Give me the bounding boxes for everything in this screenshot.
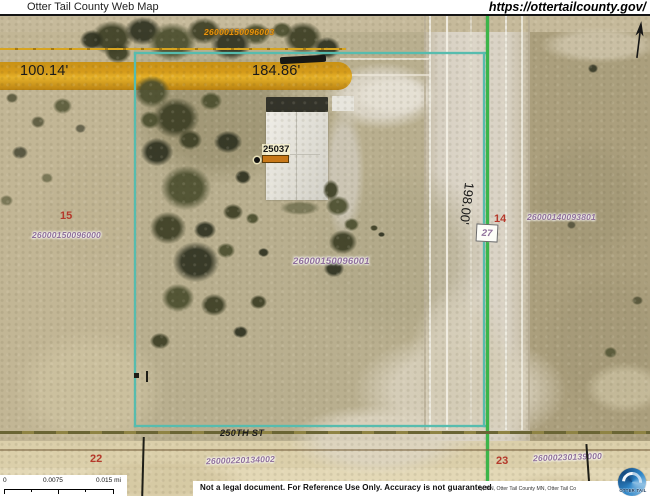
logo-caption: OTTER TAIL	[616, 488, 650, 493]
culvert-symbol	[134, 373, 139, 378]
tree-canopy	[588, 64, 598, 73]
lot-number: 27	[481, 227, 492, 239]
house-annex-roof	[332, 96, 354, 111]
lot-line-yellow	[0, 48, 346, 50]
scale-middle-label: 0.0075	[43, 477, 63, 484]
tree-canopy	[194, 221, 216, 239]
section-number-14: 14	[494, 213, 506, 225]
dimension-north: 184.86'	[252, 63, 301, 79]
street-label: 250TH ST	[220, 428, 264, 438]
tree-canopy	[223, 204, 243, 220]
tree-canopy	[604, 347, 617, 358]
road-marking	[521, 16, 523, 430]
tree-canopy	[41, 173, 53, 183]
tree-canopy	[200, 92, 222, 110]
parcel-id-label-center[interactable]: 26000150096001	[293, 256, 370, 267]
tree-canopy	[250, 295, 267, 309]
tree-canopy	[173, 242, 219, 282]
scale-end-label: 0.015 mi	[96, 477, 121, 484]
site-url[interactable]: https://ottertailcounty.gov/	[489, 0, 646, 14]
road-marking	[424, 16, 426, 430]
lot-number-box: 27	[476, 223, 499, 242]
tree-canopy	[214, 131, 242, 153]
tree-canopy	[150, 333, 170, 349]
attribution-text: ty, MN, Otter Tail County MN, Otter Tail…	[479, 486, 576, 492]
address-highlight-bar	[262, 155, 289, 163]
tree-canopy	[344, 218, 359, 231]
tree-canopy	[105, 43, 131, 63]
tree-canopy	[75, 124, 86, 133]
section-number-23: 23	[496, 455, 508, 467]
street-south-edge-line	[0, 449, 650, 451]
scale-start-label: 0	[3, 477, 7, 484]
scale-bar-line	[4, 489, 114, 490]
roof-ridge-line	[296, 112, 297, 200]
parcel-boundary-west	[134, 52, 136, 427]
north-arrow-icon	[631, 21, 647, 59]
tree-canopy	[12, 146, 28, 159]
tree-canopy	[323, 180, 339, 200]
road-marking	[446, 16, 448, 430]
header-bar: Otter Tail County Web Map https://ottert…	[0, 0, 650, 16]
section-line-green	[486, 16, 489, 482]
section-number-15: 15	[60, 210, 72, 222]
tree-canopy	[370, 225, 378, 231]
tree-canopy	[140, 111, 160, 129]
tree-canopy	[53, 98, 72, 114]
house-number-label: 25037	[262, 144, 290, 155]
tree-canopy	[0, 195, 13, 206]
street-edge-line	[0, 431, 650, 434]
tree-canopy	[235, 170, 251, 184]
tree-canopy	[632, 296, 643, 305]
tree-canopy	[6, 93, 18, 103]
scale-tick	[113, 489, 114, 494]
tree-canopy	[31, 116, 45, 128]
road-marking	[340, 58, 430, 60]
culvert-symbol-tick	[146, 371, 148, 382]
dimension-west: 100.14'	[20, 63, 69, 79]
tree-canopy	[258, 248, 269, 257]
terrain-blob	[585, 363, 650, 413]
tree-canopy	[150, 212, 186, 244]
house-garage-shadow	[266, 97, 328, 112]
tree-canopy	[162, 284, 194, 312]
page-title: Otter Tail County Web Map	[27, 1, 159, 13]
tree-canopy	[246, 213, 259, 224]
tree-canopy	[233, 326, 248, 338]
tree-canopy	[141, 138, 173, 166]
parcel-boundary-south	[134, 425, 486, 427]
disclaimer-text: Not a legal document. For Reference Use …	[200, 483, 492, 492]
address-dot-icon	[254, 157, 260, 163]
tree-canopy	[329, 230, 357, 254]
tree-canopy	[80, 30, 104, 50]
tree-canopy	[217, 243, 235, 258]
parcel-id-label[interactable]: 26000150096000	[32, 230, 101, 240]
tree-canopy	[161, 166, 211, 210]
tree-canopy	[178, 130, 202, 150]
road-marking	[528, 16, 530, 430]
parcel-id-label[interactable]: 26000140093801	[527, 212, 596, 222]
scale-tick	[58, 489, 59, 494]
tree-canopy	[567, 221, 576, 229]
section-number-22: 22	[90, 453, 102, 465]
road-marking	[346, 74, 430, 76]
parcel-boundary-north	[134, 52, 486, 54]
tree-canopy	[201, 294, 227, 316]
tree-canopy	[280, 201, 320, 215]
scale-tick	[31, 489, 32, 492]
app-window: Otter Tail County Web Map https://ottert…	[0, 0, 650, 496]
highlighted-parcel-id-label[interactable]: 26000150096003	[204, 27, 274, 37]
scale-tick	[85, 489, 86, 492]
road-marking	[429, 16, 431, 430]
tree-canopy	[378, 232, 385, 237]
terrain-blob	[525, 135, 645, 265]
scale-tick	[4, 489, 5, 494]
